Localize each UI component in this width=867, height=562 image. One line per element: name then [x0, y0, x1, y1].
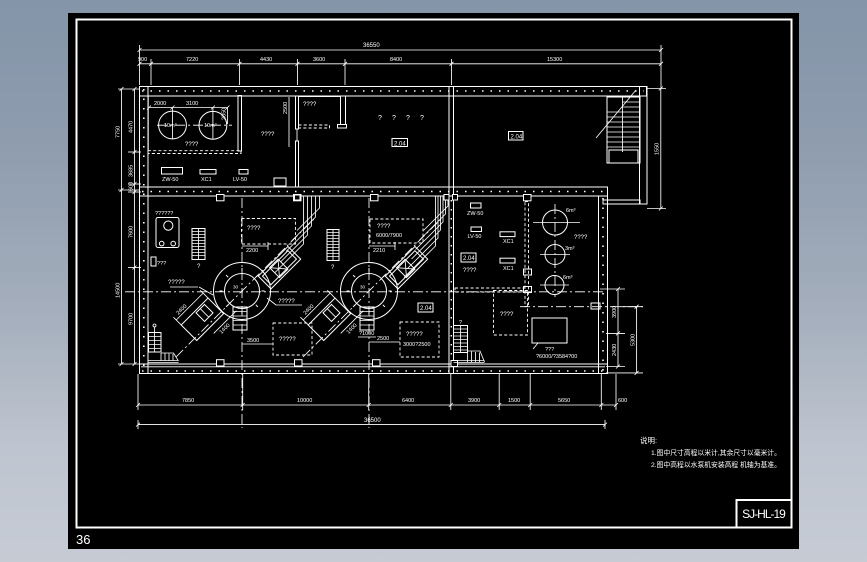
svg-text:4430: 4430: [260, 57, 272, 63]
svg-text:3500: 3500: [247, 338, 259, 344]
svg-text:????: ????: [500, 312, 514, 318]
svg-text:ZW-50: ZW-50: [162, 177, 178, 183]
svg-text:6400: 6400: [402, 398, 414, 404]
svg-text:2.图中高程以水泵机安装高程 机轴为基准。: 2.图中高程以水泵机安装高程 机轴为基准。: [651, 460, 781, 469]
svg-text:?: ?: [378, 115, 382, 122]
svg-text:7750: 7750: [116, 126, 122, 138]
svg-text:1550: 1550: [655, 143, 661, 155]
svg-text:900: 900: [138, 57, 147, 63]
svg-text:XC1: XC1: [503, 239, 514, 245]
svg-text:36500: 36500: [364, 418, 381, 424]
svg-text:XC1: XC1: [503, 266, 514, 272]
svg-text:?: ?: [459, 320, 462, 326]
svg-text:2500: 2500: [283, 102, 289, 114]
svg-text:6000/7900: 6000/7900: [376, 233, 402, 239]
svg-text:1500: 1500: [508, 398, 520, 404]
svg-text:2430: 2430: [612, 344, 618, 356]
svg-text:36550: 36550: [363, 43, 380, 49]
svg-text:XC1: XC1: [201, 177, 212, 183]
svg-text:?????: ?????: [168, 280, 185, 286]
svg-text:3685: 3685: [129, 165, 135, 177]
svg-text:???: ???: [157, 261, 166, 267]
svg-text:?????: ?????: [406, 332, 423, 338]
svg-text:?????: ?????: [278, 299, 295, 305]
svg-text:4470: 4470: [129, 121, 135, 133]
svg-text:3000?2500: 3000?2500: [403, 342, 431, 348]
svg-text:14500: 14500: [116, 283, 122, 298]
svg-text:?1000: ?1000: [359, 331, 374, 337]
svg-text:SJ-HL-19: SJ-HL-19: [742, 507, 786, 521]
svg-text:6m³: 6m³: [566, 208, 576, 214]
svg-text:????: ????: [463, 268, 477, 274]
svg-text:2200: 2200: [246, 248, 258, 254]
svg-text:5650: 5650: [558, 398, 570, 404]
svg-text:10m³: 10m³: [164, 123, 177, 129]
svg-text:8400: 8400: [390, 57, 402, 63]
svg-text:2350: 2350: [222, 108, 228, 120]
svg-text:7850: 7850: [182, 398, 194, 404]
svg-text:LV-50: LV-50: [233, 177, 247, 183]
svg-text:????: ????: [185, 142, 199, 148]
svg-text:2.04: 2.04: [511, 135, 523, 141]
svg-text:10000: 10000: [297, 398, 312, 404]
svg-text:30: 30: [233, 285, 239, 290]
svg-text:2.04: 2.04: [420, 306, 432, 312]
svg-text:1.图中尺寸高程以米计,其余尺寸以毫米计。: 1.图中尺寸高程以米计,其余尺寸以毫米计。: [651, 448, 781, 457]
svg-text:600: 600: [618, 398, 627, 404]
svg-text:3600: 3600: [313, 57, 325, 63]
svg-text:10m³: 10m³: [204, 123, 217, 129]
svg-text:????: ????: [261, 132, 275, 138]
svg-text:说明:: 说明:: [640, 435, 657, 445]
svg-text:7220: 7220: [186, 57, 198, 63]
svg-text:2210: 2210: [373, 248, 385, 254]
svg-text:2000: 2000: [154, 101, 166, 107]
svg-text:2.04: 2.04: [463, 256, 475, 262]
svg-text:????: ????: [303, 102, 317, 108]
svg-text:????: ????: [247, 226, 261, 232]
svg-text:ZW-50: ZW-50: [467, 211, 483, 217]
svg-text:3m³: 3m³: [565, 246, 575, 252]
svg-text:??????: ??????: [155, 211, 173, 217]
svg-text:?????: ?????: [279, 337, 296, 343]
svg-text:????: ????: [574, 235, 588, 241]
svg-text:7600: 7600: [129, 226, 135, 238]
svg-text:?6000/?3584?00: ?6000/?3584?00: [536, 354, 577, 360]
svg-text:6m³: 6m³: [563, 275, 573, 281]
svg-text:?: ?: [406, 115, 410, 122]
svg-text:LV-50: LV-50: [468, 234, 482, 240]
svg-text:15300: 15300: [547, 57, 562, 63]
svg-text:600: 600: [129, 182, 135, 191]
svg-text:3100: 3100: [186, 101, 198, 107]
svg-text:?: ?: [392, 115, 396, 122]
svg-text:9700: 9700: [129, 313, 135, 325]
svg-text:3900: 3900: [612, 306, 618, 318]
svg-text:30: 30: [360, 285, 366, 290]
svg-text:2500: 2500: [377, 336, 389, 342]
svg-text:2.04: 2.04: [394, 142, 406, 148]
svg-text:5300: 5300: [631, 334, 637, 346]
svg-text:???: ???: [545, 347, 554, 353]
svg-text:?: ?: [420, 115, 424, 122]
svg-text:36: 36: [76, 532, 90, 547]
svg-text:????: ????: [377, 224, 391, 230]
svg-text:3900: 3900: [468, 398, 480, 404]
